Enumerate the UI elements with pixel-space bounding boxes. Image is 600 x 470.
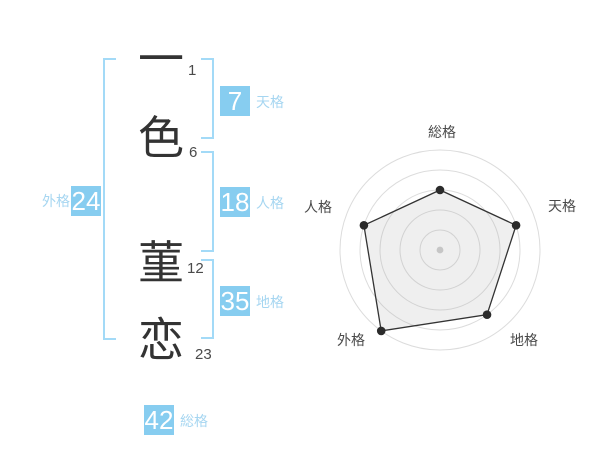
jinkaku-label: 人格 — [256, 196, 284, 210]
soukaku-value-badge: 42 — [144, 405, 174, 435]
radar-axis-label-tenkaku: 天格 — [548, 196, 576, 216]
radar-axis-label-jinkaku: 人格 — [304, 197, 332, 217]
chikaku-label: 地格 — [256, 295, 284, 309]
name-fortune-panel: 一 色 菫 恋 1 6 12 23 7 18 35 24 42 天格 人格 地格… — [0, 0, 600, 470]
chikaku-value-badge: 35 — [220, 286, 250, 316]
stroke-count-2: 6 — [189, 145, 197, 160]
radar-chart: 総格 天格 地格 外格 人格 — [290, 100, 600, 400]
tenkaku-label: 天格 — [256, 95, 284, 109]
soukaku-label: 総格 — [180, 414, 208, 428]
radar-axis-label-chikaku: 地格 — [510, 330, 538, 350]
name-character-3: 菫 — [131, 240, 191, 286]
tenkaku-value-badge: 7 — [220, 86, 250, 116]
chikaku-bracket — [201, 259, 214, 339]
gaikaku-label: 外格 — [42, 194, 70, 208]
gaikaku-bracket — [103, 58, 116, 340]
name-character-4: 恋 — [131, 317, 191, 363]
name-character-2: 色 — [131, 115, 191, 161]
stroke-count-1: 1 — [188, 63, 196, 78]
radar-axis-label-soukaku: 総格 — [428, 122, 456, 142]
jinkaku-bracket — [201, 151, 214, 252]
name-character-1: 一 — [131, 36, 191, 82]
tenkaku-bracket — [201, 58, 214, 139]
radar-svg — [290, 100, 590, 400]
radar-axis-label-gaikaku: 外格 — [337, 330, 365, 350]
jinkaku-value-badge: 18 — [220, 187, 250, 217]
gaikaku-value-badge: 24 — [71, 186, 101, 216]
stroke-count-4: 23 — [195, 347, 212, 362]
